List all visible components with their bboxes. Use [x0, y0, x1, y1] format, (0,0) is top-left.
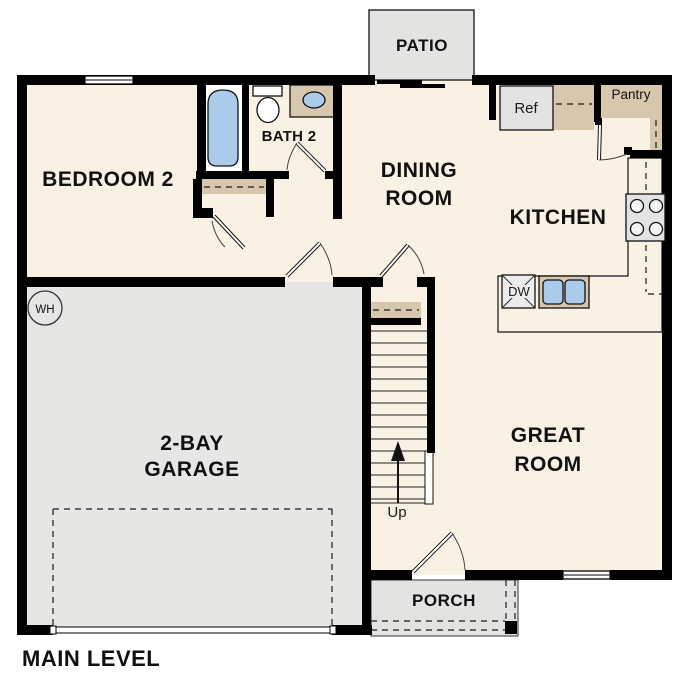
floor-plan-page: Ref DW WH BEDROOM 2 BATH 2 DINING ROOM K…	[0, 0, 687, 687]
garage-label-line1: 2-BAY	[160, 432, 224, 455]
bathtub	[208, 90, 238, 166]
porch-label: PORCH	[412, 591, 476, 610]
stairs-up-label: Up	[387, 504, 406, 521]
pantry-label: Pantry	[611, 87, 650, 102]
garage-overhead-door	[50, 626, 336, 634]
bath-sink	[303, 92, 325, 108]
toilet-tank	[253, 86, 282, 96]
greatroom-label-line2: ROOM	[514, 453, 581, 476]
plan-title: MAIN LEVEL	[22, 646, 160, 671]
floor-plan-canvas: Ref DW WH BEDROOM 2 BATH 2 DINING ROOM K…	[0, 0, 687, 687]
sink-basin-left	[543, 280, 563, 304]
refrigerator-label: Ref	[514, 100, 538, 117]
kitchen-label: KITCHEN	[510, 206, 607, 229]
kitchen-sink	[539, 276, 589, 308]
patio-label: PATIO	[396, 36, 448, 55]
porch-post	[505, 621, 517, 634]
greatroom-label-line1: GREAT	[511, 424, 585, 447]
linen-closet-shelf	[202, 179, 266, 194]
toilet-bowl	[257, 98, 279, 123]
sink-basin-right	[565, 280, 585, 304]
garage-label-line2: GARAGE	[144, 458, 239, 481]
bath2-label: BATH 2	[262, 128, 317, 145]
stair-handrail	[425, 451, 433, 504]
bedroom2-label: BEDROOM 2	[42, 168, 174, 191]
dishwasher: DW	[502, 275, 535, 308]
garage-floor	[22, 282, 367, 630]
dining-label-line2: ROOM	[385, 187, 452, 210]
dishwasher-label: DW	[508, 284, 530, 299]
dining-label-line1: DINING	[381, 159, 458, 182]
kitchen-upper-counter	[553, 85, 594, 130]
water-heater-label: WH	[35, 304, 54, 316]
